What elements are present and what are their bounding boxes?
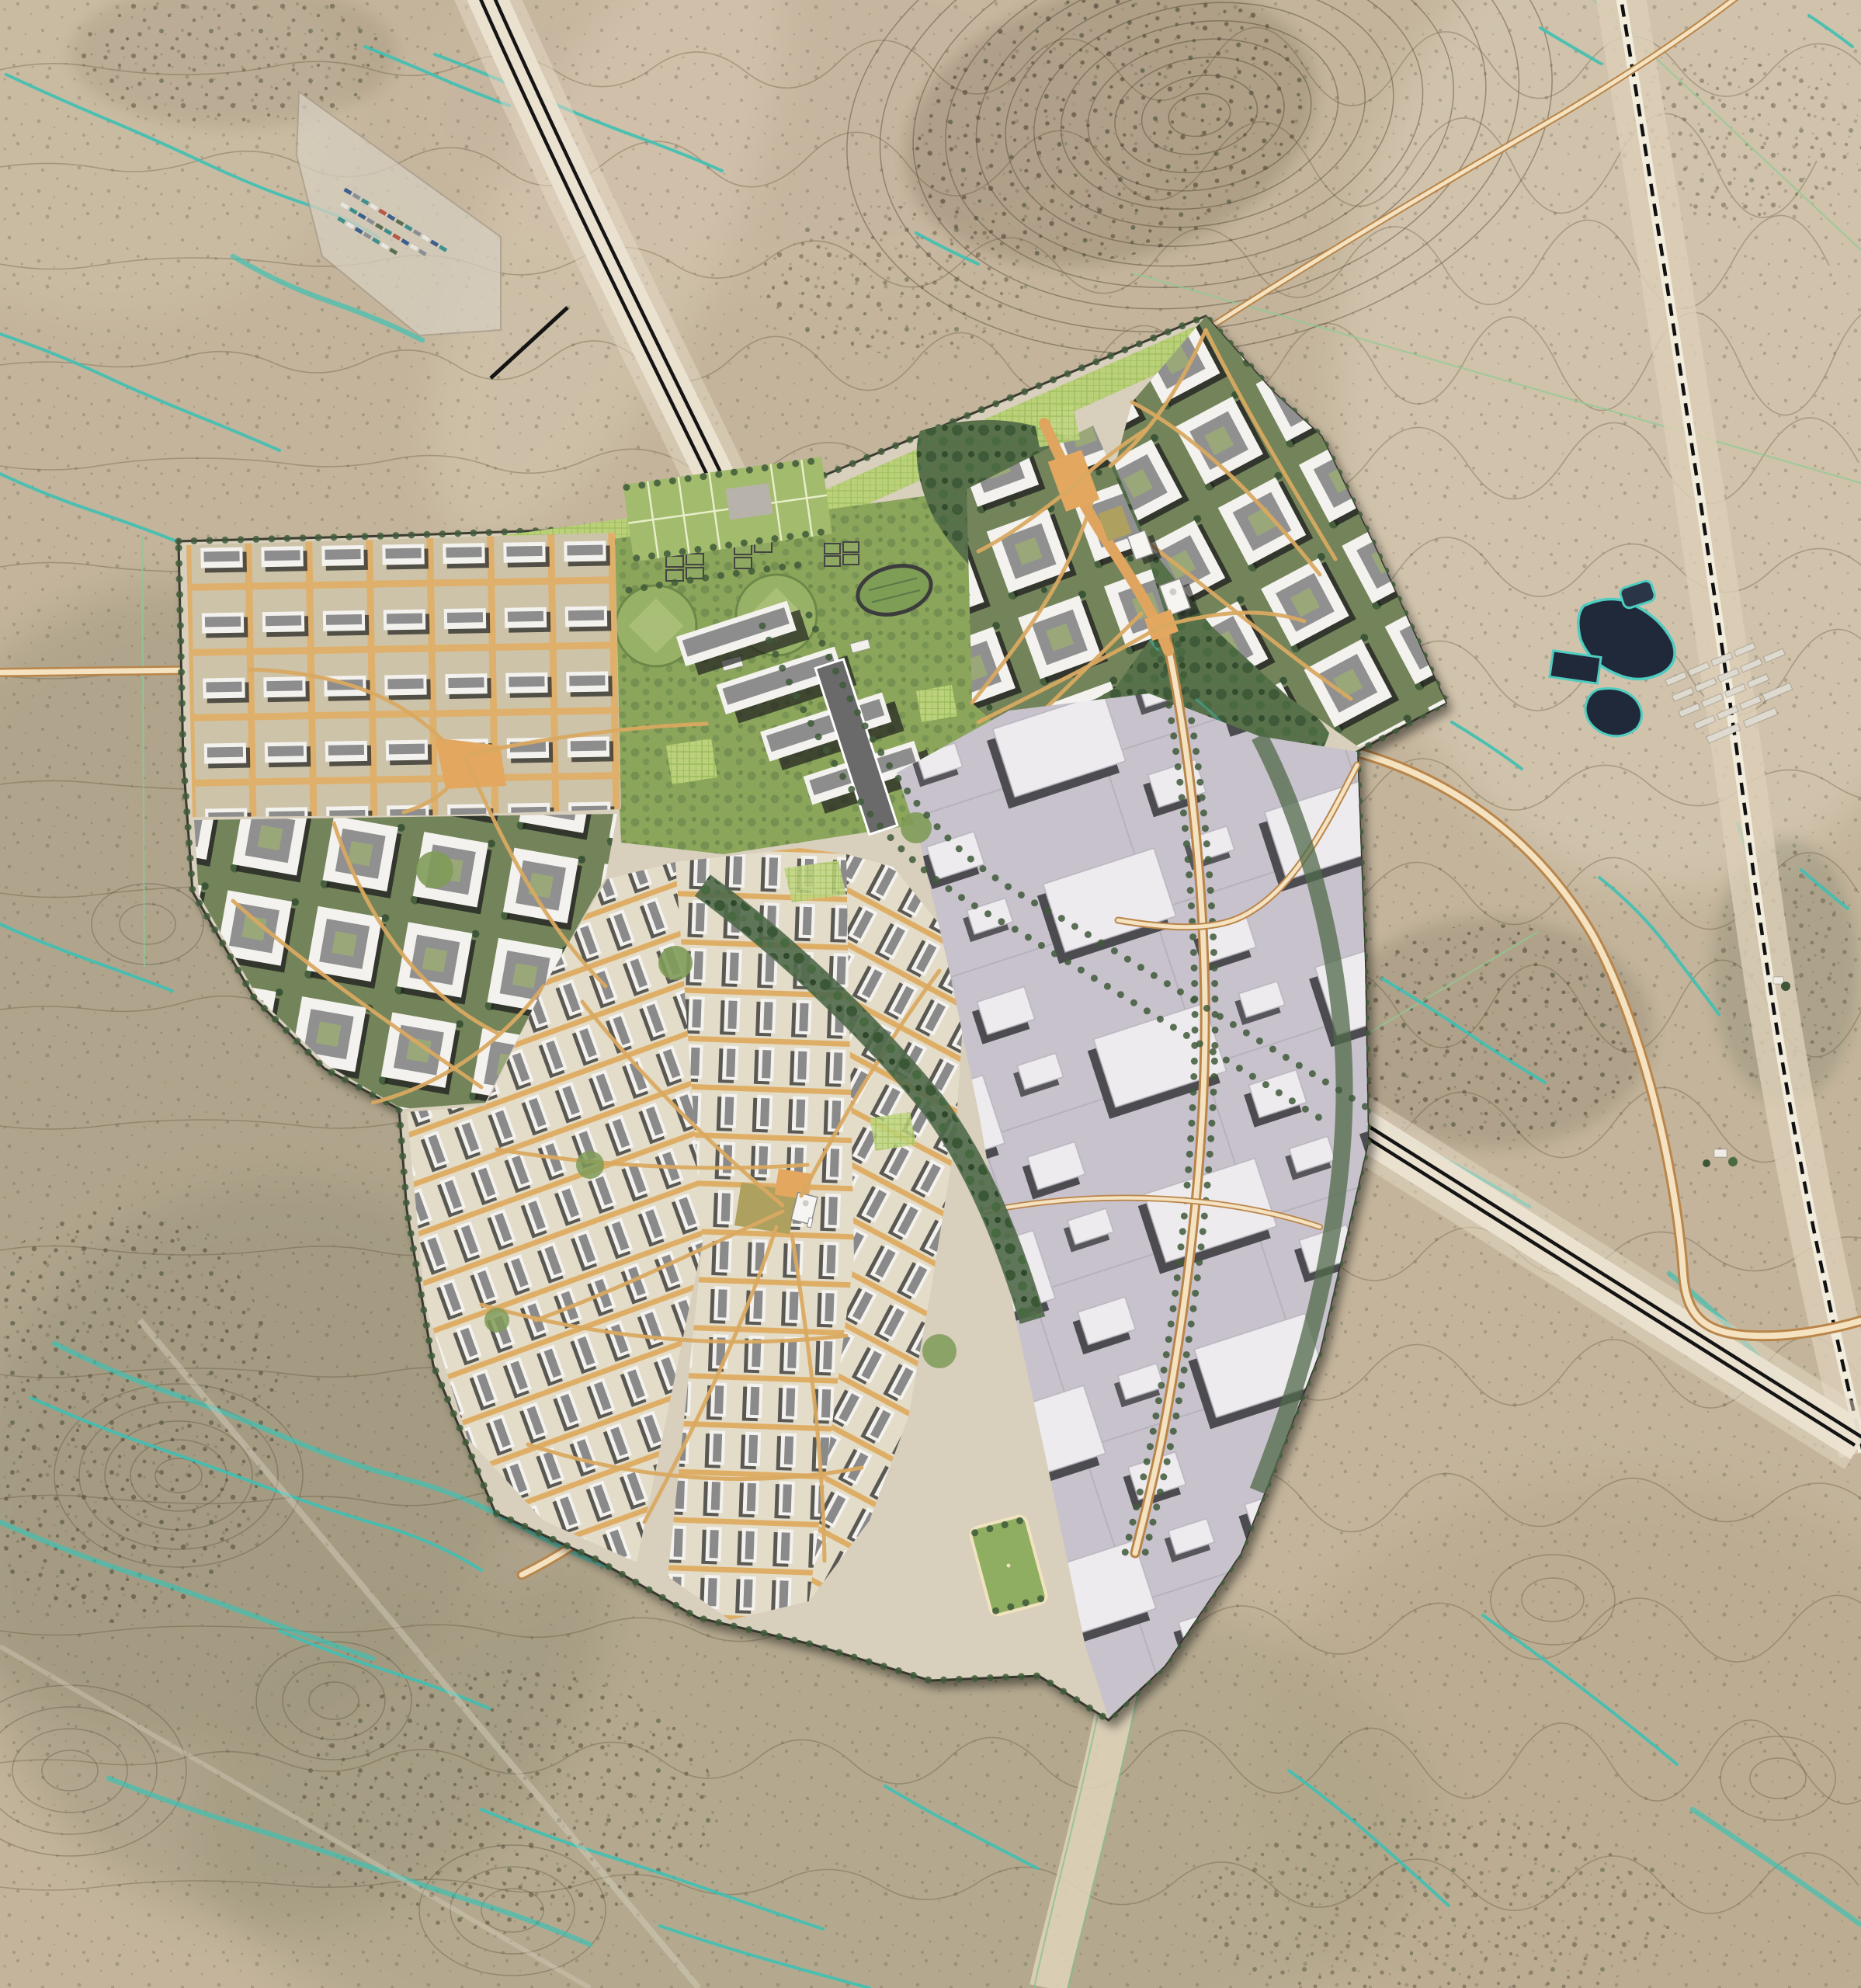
masterplan-map: const data = JSON.parse(document.getElem… [0, 0, 1861, 1988]
checker-field [666, 739, 717, 784]
checker-field [916, 685, 957, 722]
district-west-rows [186, 533, 621, 817]
masterplan-svg: const data = JSON.parse(document.getElem… [0, 0, 1861, 1988]
